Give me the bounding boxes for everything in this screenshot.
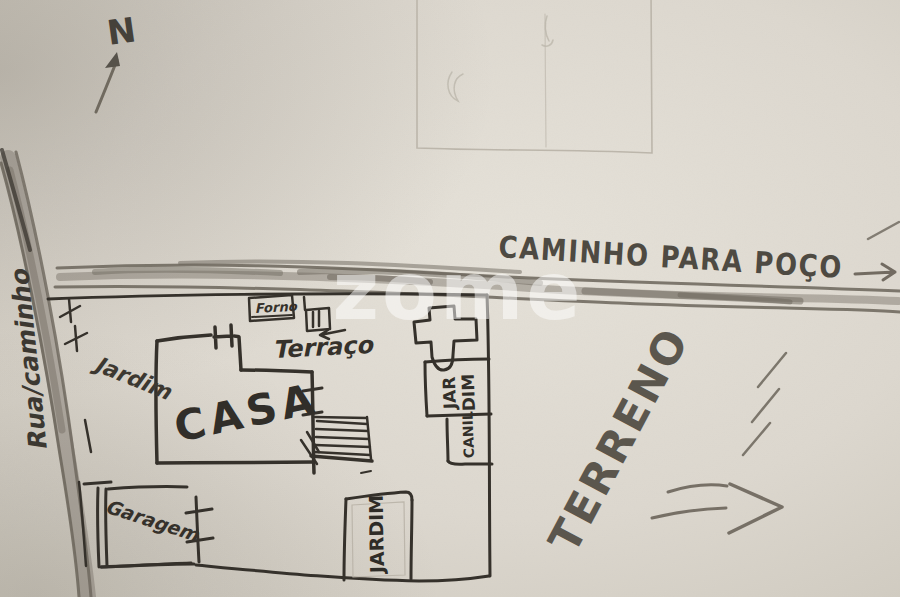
garden-bottom-label: JARDIM: [365, 495, 388, 576]
oven-label: Forno: [254, 299, 298, 316]
kennel-label: CANIL: [459, 411, 477, 459]
sketch-canvas: N CAMINHO PARA POÇO Rua/caminho CASA Jar…: [0, 0, 900, 597]
hand-drawn-property-sketch: N CAMINHO PARA POÇO Rua/caminho CASA Jar…: [0, 0, 900, 597]
north-label: N: [105, 9, 139, 53]
garden-right-label-line2: DIM: [458, 374, 479, 412]
garden-right-label-line1: JAR: [439, 376, 460, 410]
zome-watermark: zome: [332, 245, 583, 338]
